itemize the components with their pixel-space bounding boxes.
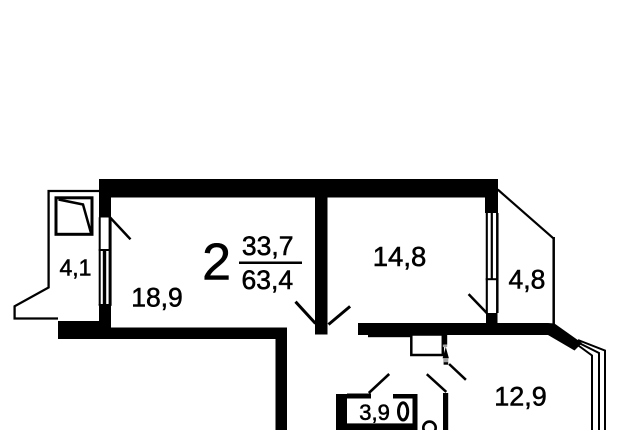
svg-text:12,9: 12,9 (494, 381, 547, 411)
svg-text:63,4: 63,4 (242, 265, 294, 295)
svg-text:33,7: 33,7 (242, 231, 294, 261)
svg-text:14,8: 14,8 (373, 241, 427, 272)
svg-text:4,1: 4,1 (60, 254, 92, 280)
svg-text:3,9: 3,9 (359, 400, 390, 425)
svg-text:18,9: 18,9 (131, 282, 183, 312)
svg-text:2: 2 (202, 234, 231, 292)
svg-text:4,8: 4,8 (508, 265, 545, 295)
